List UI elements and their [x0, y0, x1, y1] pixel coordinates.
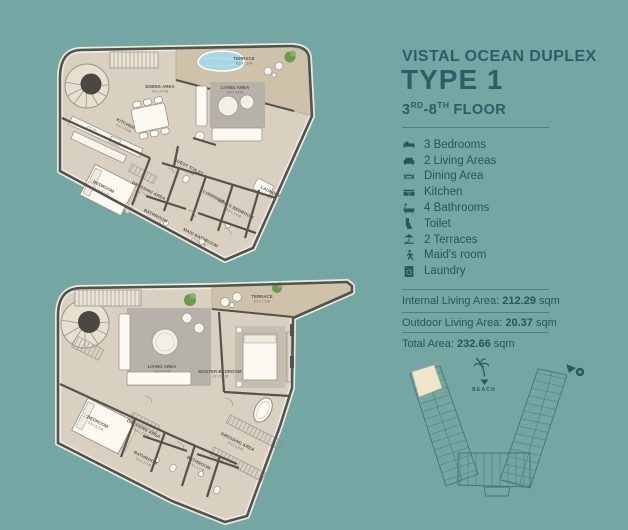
svg-text:4.0 x 4.4 M: 4.0 x 4.4 M — [152, 90, 169, 94]
beach-label: BEACH — [472, 387, 496, 393]
feature-label: 2 Living Areas — [424, 155, 496, 167]
straight-staircase — [110, 52, 158, 68]
feature-label: Dining Area — [424, 170, 483, 182]
bathtub-icon — [402, 202, 416, 215]
sofa — [119, 314, 130, 370]
side-table — [240, 95, 254, 109]
feature-item-kitchen: Kitchen — [402, 184, 496, 200]
feature-label: 4 Bathrooms — [424, 202, 489, 214]
washing-machine-icon — [402, 265, 416, 278]
total-area: Total Area: 232.66 sqm — [402, 338, 515, 350]
feature-label: Maid's room — [424, 249, 486, 261]
feature-label: Kitchen — [424, 186, 462, 198]
living-area-furniture — [119, 308, 211, 386]
sofa — [196, 86, 207, 126]
internal-living-area: Internal Living Area: 212.29 sqm — [402, 295, 560, 307]
feature-label: Laundry — [424, 265, 466, 277]
beach-icon — [475, 359, 489, 386]
svg-text:DINING AREA: DINING AREA — [145, 84, 174, 89]
sofa-2 — [212, 128, 262, 141]
svg-text:TERRACE: TERRACE — [251, 294, 273, 299]
kitchen-icon — [402, 186, 416, 199]
feature-item-toilet: Toilet — [402, 216, 496, 232]
divider — [402, 127, 549, 128]
feature-label: 2 Terraces — [424, 234, 477, 246]
svg-text:TERRACE: TERRACE — [233, 56, 255, 61]
type-label: TYPE 1 — [401, 64, 503, 96]
feature-item-maids-room: Maid's room — [402, 248, 496, 264]
maid-icon — [402, 249, 416, 262]
compass-icon — [566, 364, 584, 376]
toilet-icon — [402, 217, 416, 230]
feature-item-bedrooms: 3 Bedrooms — [402, 137, 496, 153]
master-bed — [235, 326, 285, 388]
site-key-plan: BEACH — [400, 356, 612, 502]
armchair — [182, 313, 192, 323]
svg-text:8.3 x 1.6 M: 8.3 x 1.6 M — [236, 62, 253, 66]
feature-item-terraces: 2 Terraces — [402, 232, 496, 248]
svg-text:LIVING AREA: LIVING AREA — [148, 364, 177, 369]
divider — [402, 289, 549, 290]
feature-list: 3 Bedrooms 2 Living Areas Dining Area Ki… — [402, 137, 496, 279]
divider — [402, 332, 549, 333]
floorplan-lower-level: LIVING AREA4.2 x 4.4 M TERRACE8.0 x 1.5 … — [25, 276, 360, 530]
outdoor-living-area: Outdoor Living Area: 20.37 sqm — [402, 317, 557, 329]
room-label-terrace: TERRACE8.0 x 1.5 M — [251, 294, 273, 304]
sofa-icon — [402, 154, 416, 167]
sofa-2 — [127, 372, 191, 385]
svg-text:5.0 x 4.8 M: 5.0 x 4.8 M — [227, 91, 244, 95]
feature-item-laundry: Laundry — [402, 263, 496, 279]
floorplan-upper-level: DINING AREA4.0 x 4.4 M KITCHEN2.4 x 4.9 … — [28, 38, 320, 290]
floor-range: 3RD-8THFLOOR — [402, 100, 506, 118]
svg-text:4.2 x 4.4 M: 4.2 x 4.4 M — [154, 370, 171, 374]
feature-item-living-areas: 2 Living Areas — [402, 153, 496, 169]
parasol-icon — [402, 233, 416, 246]
divider — [402, 312, 549, 313]
bed-icon — [402, 138, 416, 151]
svg-text:4.2 x 5.2 M: 4.2 x 5.2 M — [212, 375, 229, 379]
feature-item-dining-area: Dining Area — [402, 169, 496, 185]
svg-text:LIVING AREA: LIVING AREA — [221, 85, 250, 90]
coffee-table — [218, 96, 238, 116]
armchair-2 — [194, 323, 204, 333]
svg-text:MASTER BEDROOM: MASTER BEDROOM — [198, 369, 241, 374]
feature-label: 3 Bedrooms — [424, 139, 486, 151]
spiral-staircase — [65, 64, 109, 108]
beach-arrow-icon — [481, 380, 489, 386]
room-label-terrace: TERRACE8.3 x 1.6 M — [233, 56, 255, 66]
dining-table-icon — [402, 170, 416, 183]
feature-label: Toilet — [424, 218, 451, 230]
brochure-page: DINING AREA4.0 x 4.4 M KITCHEN2.4 x 4.9 … — [0, 0, 628, 530]
feature-item-bathrooms: 4 Bathrooms — [402, 200, 496, 216]
svg-text:8.0 x 1.5 M: 8.0 x 1.5 M — [254, 300, 271, 304]
